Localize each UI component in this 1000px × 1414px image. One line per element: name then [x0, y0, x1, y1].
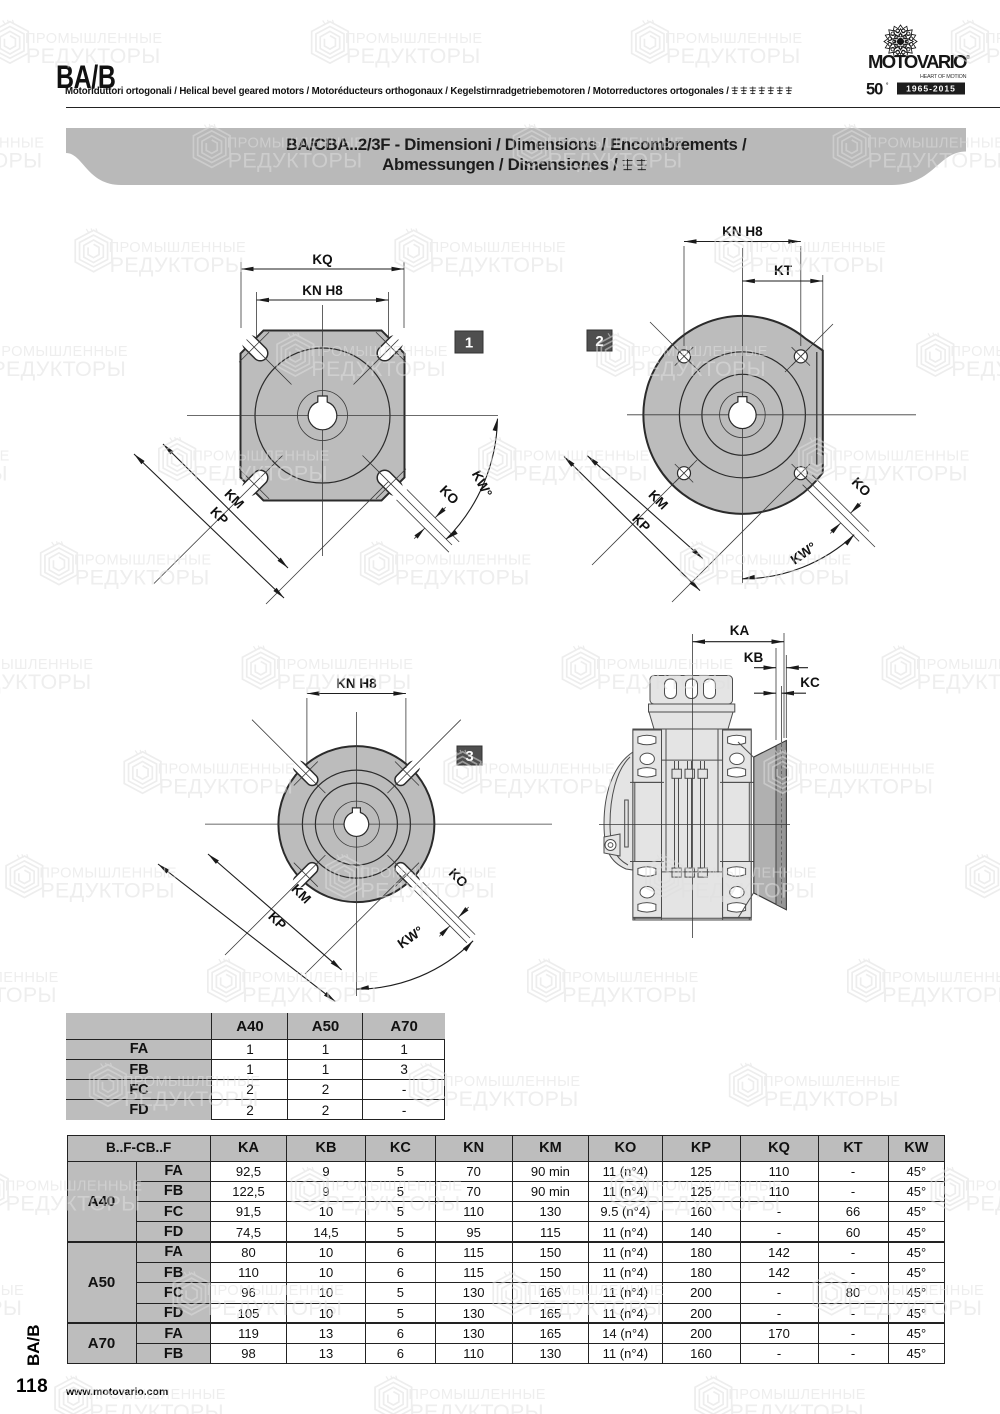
- svg-text:KP: KP: [629, 511, 653, 535]
- svg-text:KN H8: KN H8: [336, 676, 377, 691]
- svg-text:KO: KO: [446, 865, 471, 890]
- svg-text:50: 50: [866, 81, 883, 99]
- svg-text:MOTOVARIO: MOTOVARIO: [868, 51, 967, 72]
- svg-text:2: 2: [595, 333, 603, 350]
- svg-text:KW°: KW°: [788, 539, 819, 567]
- svg-text:®: ®: [966, 54, 970, 61]
- svg-text:KO: KO: [437, 482, 462, 507]
- svg-text:KB: KB: [744, 650, 764, 665]
- svg-text:KP: KP: [265, 909, 289, 933]
- svg-text:KC: KC: [800, 675, 820, 690]
- svg-text:KN H8: KN H8: [722, 224, 763, 239]
- svg-text:1965-2015: 1965-2015: [906, 84, 956, 94]
- svg-text:KW°: KW°: [395, 923, 426, 951]
- svg-text:KT: KT: [774, 263, 793, 278]
- svg-text:HEART OF MOTION: HEART OF MOTION: [920, 74, 967, 80]
- svg-text:3: 3: [465, 748, 473, 765]
- svg-text:KN H8: KN H8: [302, 283, 343, 298]
- svg-text:KM: KM: [645, 487, 670, 512]
- svg-text:°: °: [886, 83, 889, 89]
- svg-text:KW°: KW°: [469, 468, 495, 500]
- svg-text:KQ: KQ: [312, 252, 332, 267]
- svg-text:KO: KO: [849, 474, 874, 499]
- svg-text:1: 1: [465, 335, 473, 352]
- svg-text:KA: KA: [730, 623, 750, 638]
